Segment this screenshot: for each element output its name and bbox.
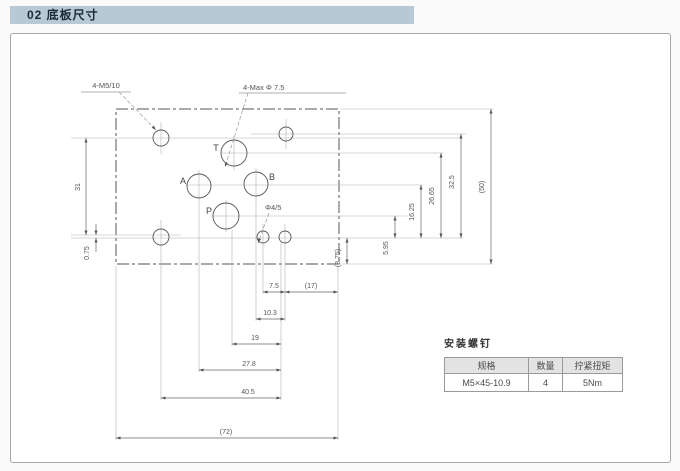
dim-26-65: 26.65 <box>429 187 436 205</box>
port-t-label: T <box>213 143 219 153</box>
callout-pin-leader <box>258 213 269 243</box>
dim-40-5: 40.5 <box>241 389 255 396</box>
dim-50: (50) <box>479 181 486 193</box>
port-a-label: A <box>180 176 186 186</box>
col-spec: 规格 <box>445 358 529 374</box>
cell-quantity: 4 <box>529 374 563 392</box>
mounting-screws-table: 安装螺钉 规格 数量 拧紧扭矩 M5×45-10.9 4 5Nm <box>444 335 624 392</box>
dim-27-8: 27.8 <box>242 361 256 368</box>
dim-8-75: (8.75) <box>335 249 342 267</box>
dim-32-5: 32.5 <box>449 175 456 189</box>
dim-7-5: 7.5 <box>269 283 279 290</box>
table-header-row: 规格 数量 拧紧扭矩 <box>445 358 623 374</box>
dim-10-3: 10.3 <box>263 310 277 317</box>
cell-torque: 5Nm <box>563 374 623 392</box>
port-b-label: B <box>269 172 275 182</box>
col-torque: 拧紧扭矩 <box>563 358 623 374</box>
callout-main-ports: 4-Max Φ 7.5 <box>243 83 284 92</box>
dim-31: 31 <box>75 183 82 191</box>
callout-pin-holes: Φ4/5 <box>265 203 281 212</box>
table-row: M5×45-10.9 4 5Nm <box>445 374 623 392</box>
dimension-lines <box>86 109 491 438</box>
col-quantity: 数量 <box>529 358 563 374</box>
dim-72: (72) <box>220 429 232 436</box>
cell-spec: M5×45-10.9 <box>445 374 529 392</box>
dimension-drawing: T A B P 4-M5/10 4-Max Φ 7.5 Φ4/5 <box>11 34 670 462</box>
dim-19: 19 <box>251 335 259 342</box>
plate-outline <box>116 109 339 264</box>
dim-5-95: 5.95 <box>383 241 390 255</box>
dim-16-25: 16.25 <box>409 203 416 221</box>
extension-lines <box>71 109 493 440</box>
dim-17: (17) <box>305 283 317 290</box>
section-header: 02 底板尺寸 <box>10 6 414 24</box>
table-title: 安装螺钉 <box>444 335 624 350</box>
callout-mounting-leader <box>119 92 156 130</box>
content-panel: T A B P 4-M5/10 4-Max Φ 7.5 Φ4/5 <box>10 33 671 463</box>
dim-0-75: 0.75 <box>84 246 91 260</box>
callout-ports-leader <box>225 93 248 167</box>
callout-mounting-holes: 4-M5/10 <box>92 81 120 90</box>
port-p-label: P <box>206 206 212 216</box>
section-title: 02 底板尺寸 <box>27 8 99 22</box>
